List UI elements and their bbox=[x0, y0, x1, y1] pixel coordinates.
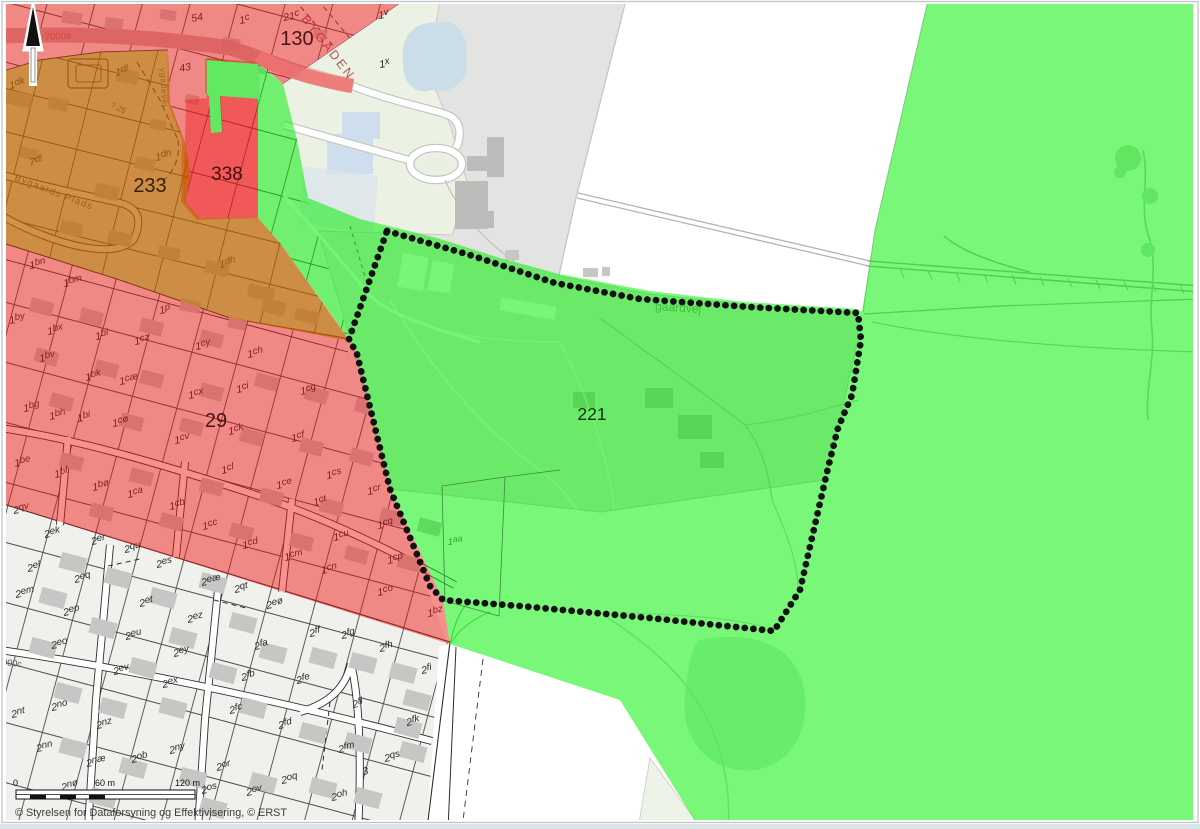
svg-text:233: 233 bbox=[133, 175, 166, 197]
svg-text:0: 0 bbox=[13, 778, 18, 788]
svg-text:221: 221 bbox=[577, 404, 606, 424]
svg-text:130: 130 bbox=[280, 28, 313, 50]
svg-text:338: 338 bbox=[211, 164, 243, 185]
svg-text:© Styrelsen for Dataforsyning: © Styrelsen for Dataforsyning og Effekti… bbox=[15, 807, 287, 819]
svg-text:60 m: 60 m bbox=[95, 778, 115, 788]
svg-text:120 m: 120 m bbox=[175, 778, 200, 788]
svg-text:29: 29 bbox=[205, 410, 227, 432]
